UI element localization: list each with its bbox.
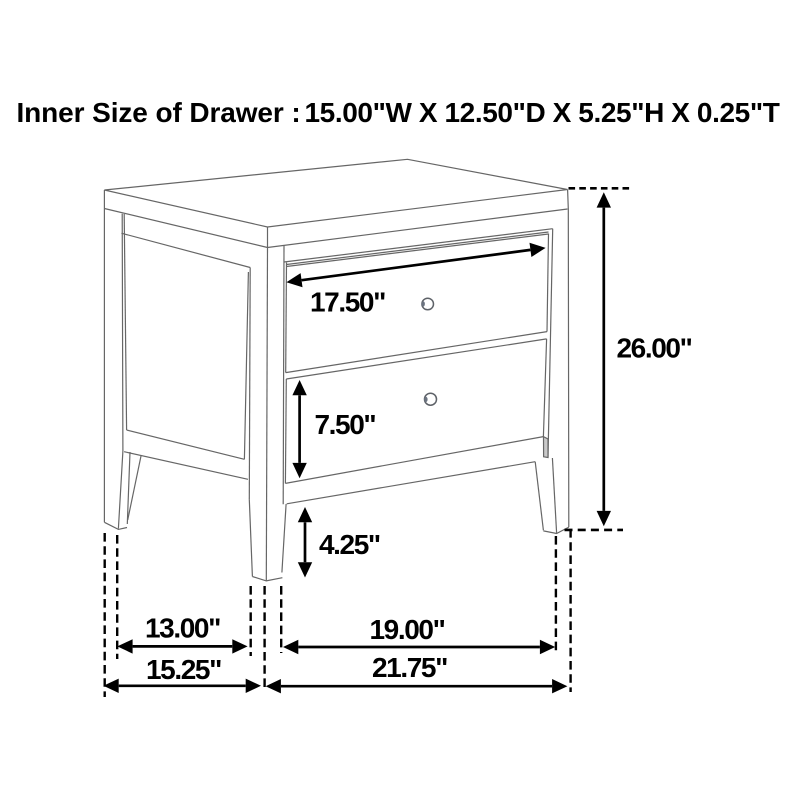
- svg-text:15.00"W X 12.50"D X 5.25"H X 0: 15.00"W X 12.50"D X 5.25"H X 0.25"T: [305, 97, 780, 128]
- svg-text:21.75": 21.75": [372, 652, 447, 683]
- svg-text:13.00": 13.00": [145, 613, 220, 644]
- svg-text:7.50": 7.50": [315, 409, 376, 440]
- svg-text:17.50": 17.50": [310, 287, 385, 318]
- svg-text:15.25": 15.25": [146, 654, 221, 685]
- svg-text:4.25": 4.25": [319, 529, 380, 560]
- svg-text:19.00": 19.00": [370, 614, 445, 645]
- svg-text:26.00": 26.00": [617, 333, 692, 364]
- svg-text:Inner Size of Drawer :: Inner Size of Drawer :: [17, 97, 301, 128]
